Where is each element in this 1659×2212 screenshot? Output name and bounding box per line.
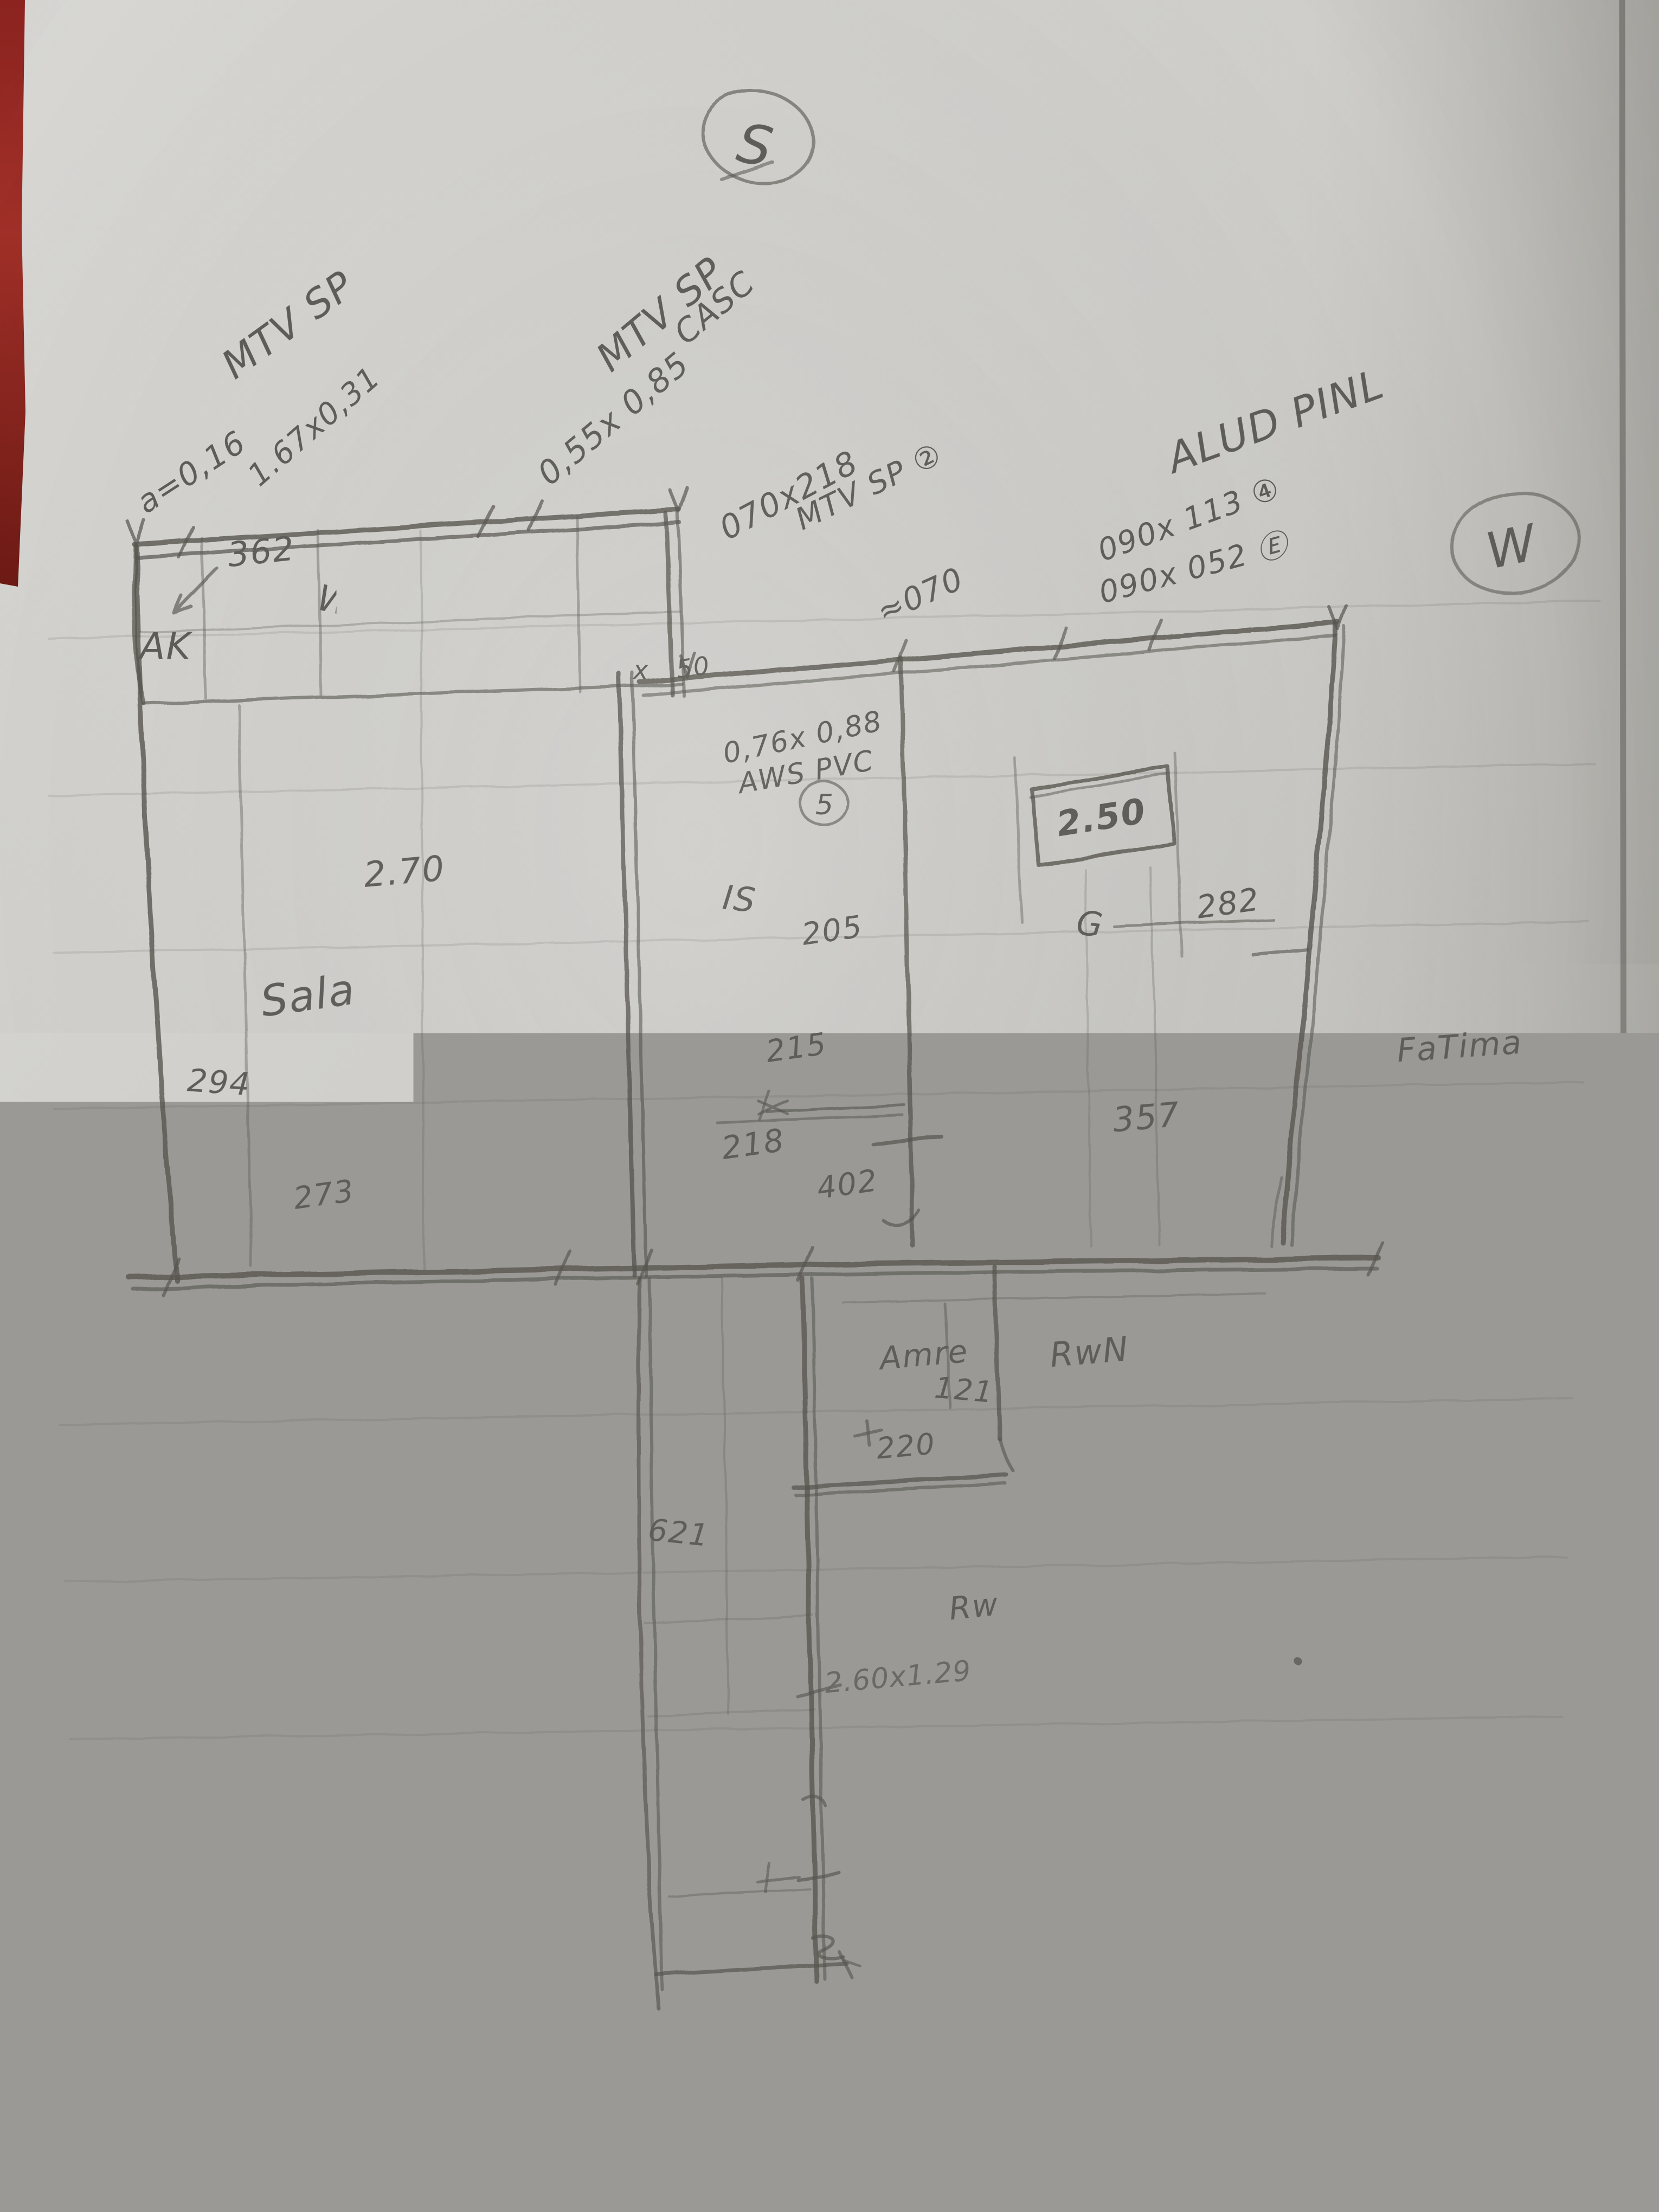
photo-vignette	[0, 0, 1659, 2212]
photo-of-sketch: S W MTV SP a=0,16 1.67x0,31 MTV SP 0,55x…	[0, 0, 1659, 2212]
floor-plan-sketch: S W MTV SP a=0,16 1.67x0,31 MTV SP 0,55x…	[0, 0, 1659, 2212]
